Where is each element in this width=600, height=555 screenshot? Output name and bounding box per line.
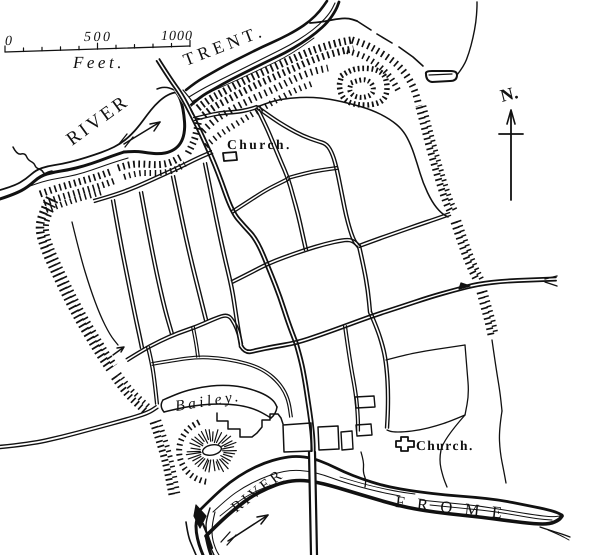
svg-text:Church.: Church. bbox=[227, 137, 292, 152]
svg-text:Feet.: Feet. bbox=[72, 53, 125, 72]
svg-text:1000: 1000 bbox=[161, 29, 193, 44]
svg-text:Church.: Church. bbox=[416, 438, 474, 453]
svg-text:500: 500 bbox=[84, 30, 113, 45]
svg-text:0: 0 bbox=[5, 34, 12, 49]
